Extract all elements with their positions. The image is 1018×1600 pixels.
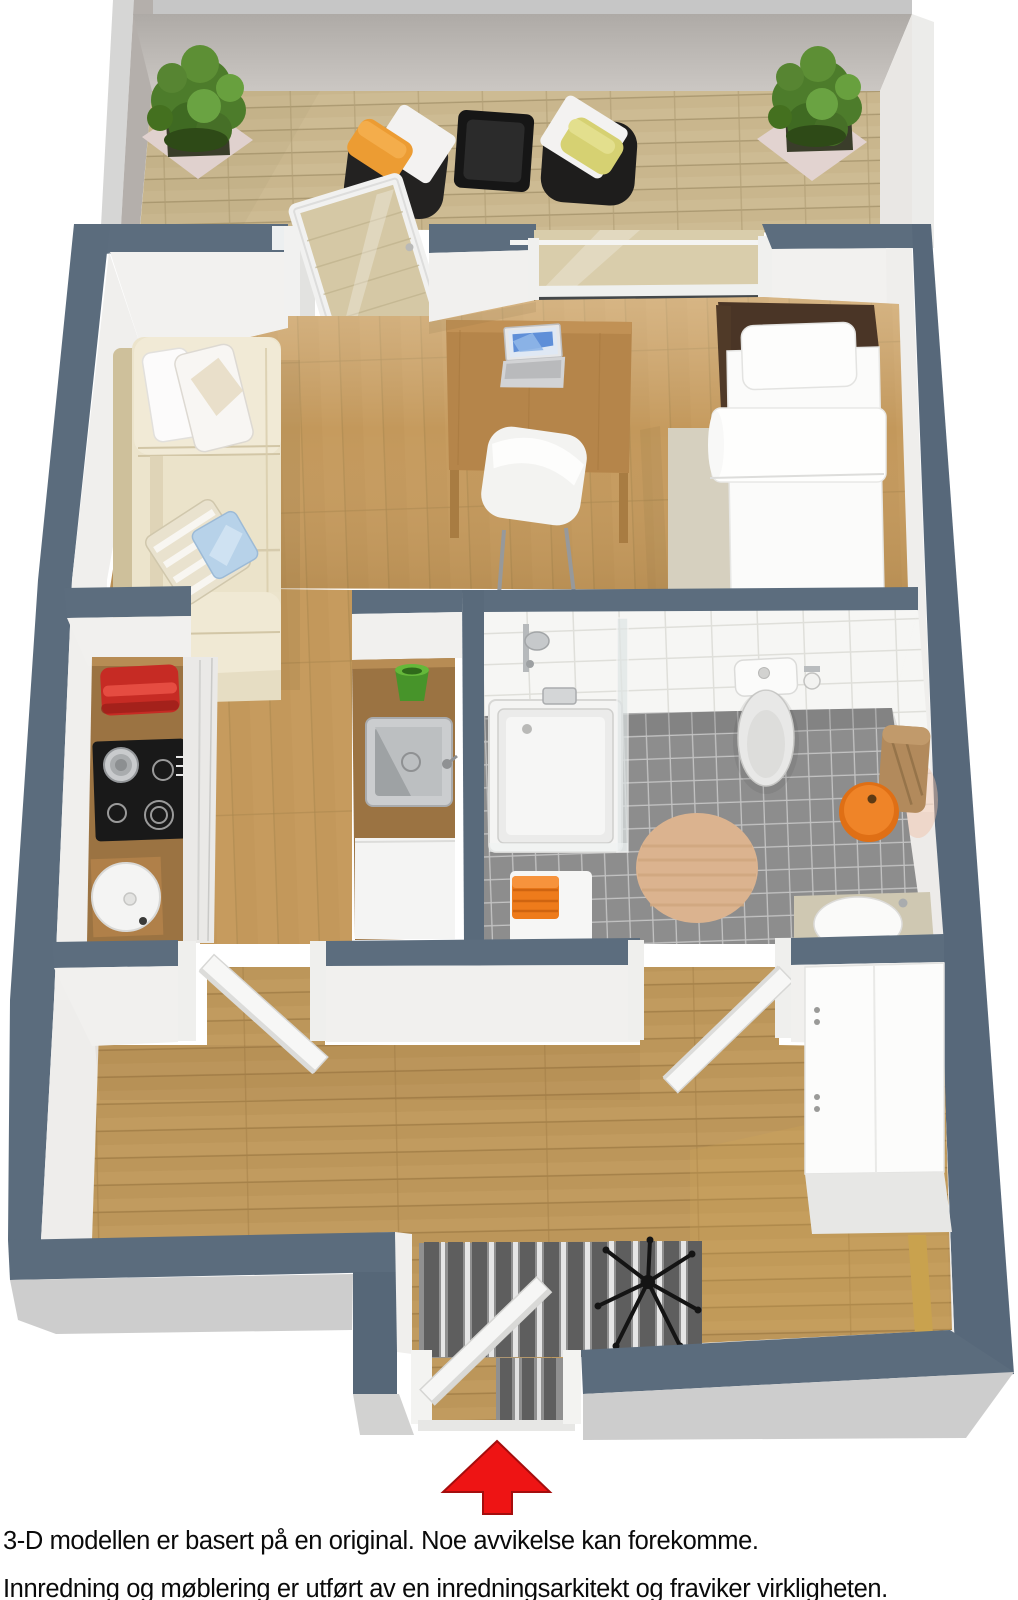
- svg-text:Innredning og møblering er utf: Innredning og møblering er utført av en …: [3, 1575, 888, 1600]
- svg-text:3-D modellen er basert på en o: 3-D modellen er basert på en original. N…: [3, 1527, 759, 1555]
